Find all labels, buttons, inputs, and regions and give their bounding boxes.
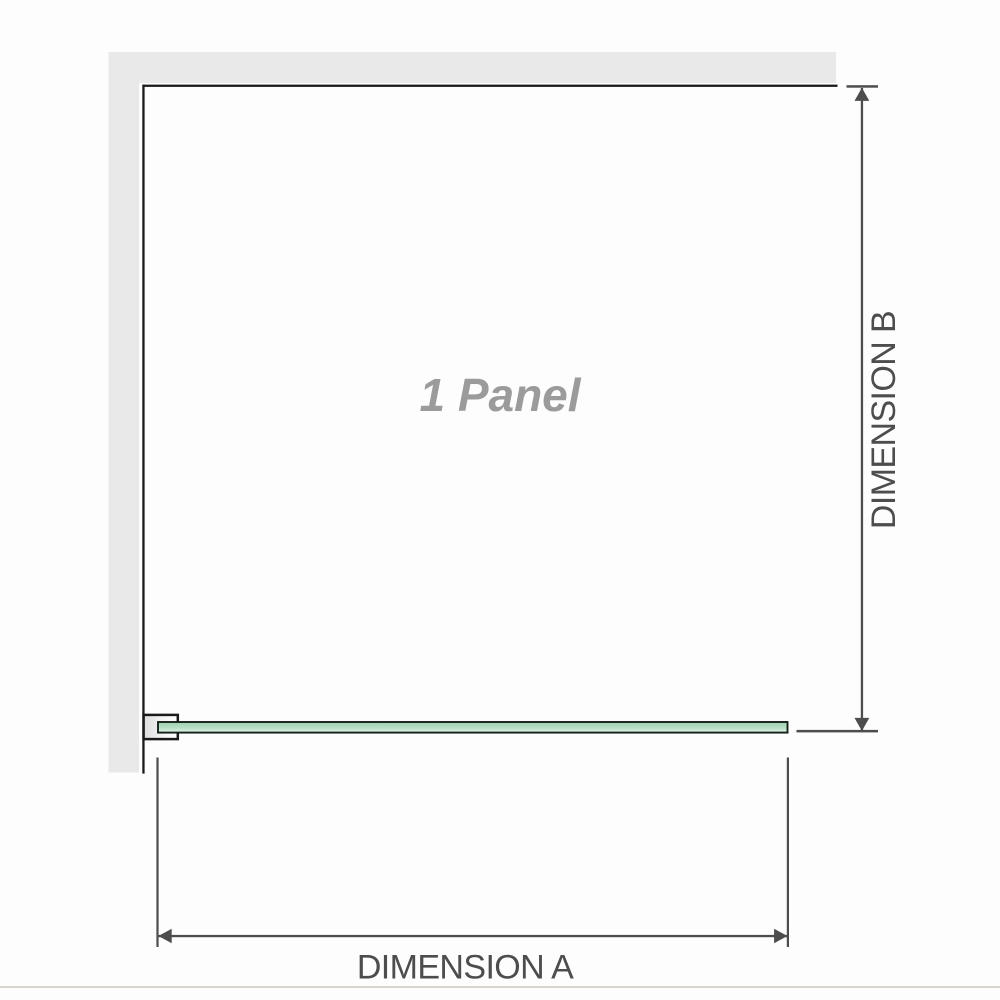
svg-text:DIMENSION B: DIMENSION B (865, 311, 903, 529)
svg-text:DIMENSION A: DIMENSION A (357, 949, 574, 987)
svg-text:1 Panel: 1 Panel (419, 369, 581, 421)
